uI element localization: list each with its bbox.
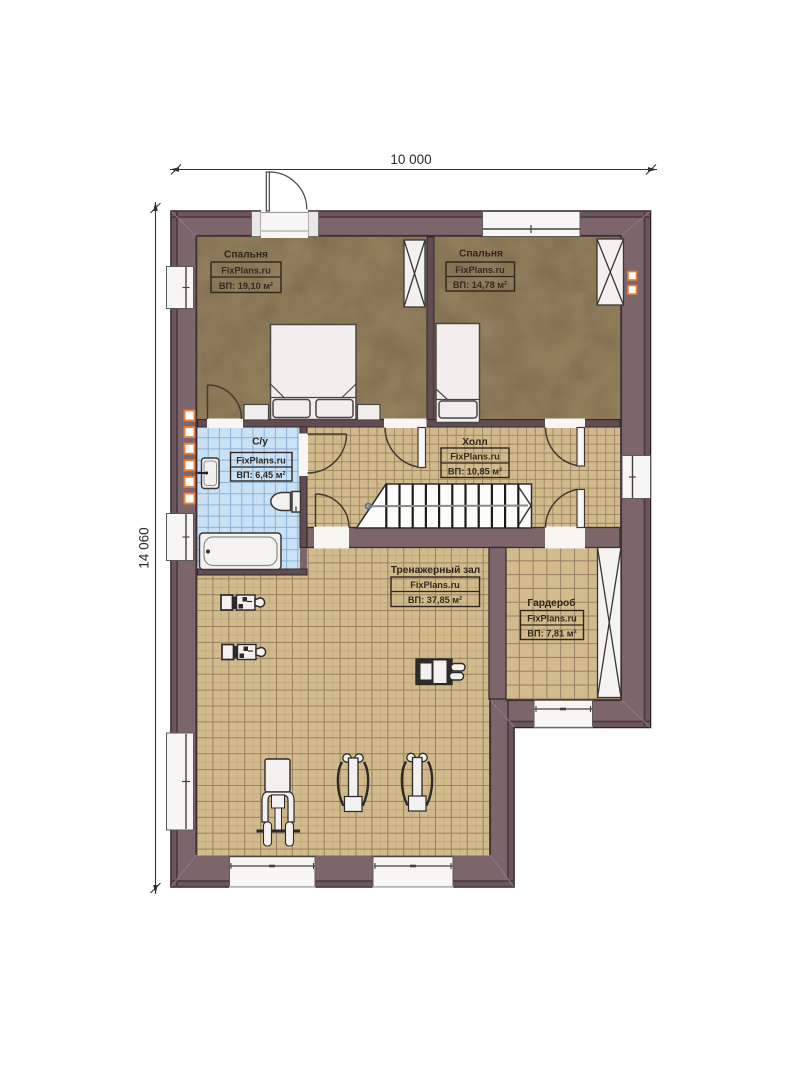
svg-text:ВП: 7,81 м²: ВП: 7,81 м² [527, 628, 576, 638]
svg-text:FixPlans.ru: FixPlans.ru [455, 265, 505, 275]
svg-text:ВП: 6,45 м²: ВП: 6,45 м² [236, 470, 285, 480]
svg-text:FixPlans.ru: FixPlans.ru [221, 266, 271, 276]
svg-text:ВП: 10,85 м²: ВП: 10,85 м² [448, 466, 502, 476]
svg-text:Тренажерный зал: Тренажерный зал [391, 565, 481, 576]
svg-text:FixPlans.ru: FixPlans.ru [527, 614, 577, 624]
svg-text:Спальня: Спальня [224, 250, 268, 261]
svg-text:Гардероб: Гардероб [527, 597, 575, 609]
svg-text:FixPlans.ru: FixPlans.ru [410, 580, 460, 590]
svg-text:Спальня: Спальня [459, 249, 503, 260]
svg-text:ВП: 19,10 м²: ВП: 19,10 м² [219, 281, 273, 291]
svg-text:FixPlans.ru: FixPlans.ru [450, 452, 500, 462]
svg-text:14 060: 14 060 [137, 527, 152, 568]
svg-text:FixPlans.ru: FixPlans.ru [236, 456, 286, 466]
svg-text:С/у: С/у [252, 437, 268, 448]
svg-text:ВП: 14,78 м²: ВП: 14,78 м² [453, 280, 507, 290]
svg-text:Холл: Холл [462, 437, 488, 448]
svg-text:10 000: 10 000 [390, 152, 431, 167]
svg-text:ВП: 37,85 м²: ВП: 37,85 м² [408, 595, 462, 605]
